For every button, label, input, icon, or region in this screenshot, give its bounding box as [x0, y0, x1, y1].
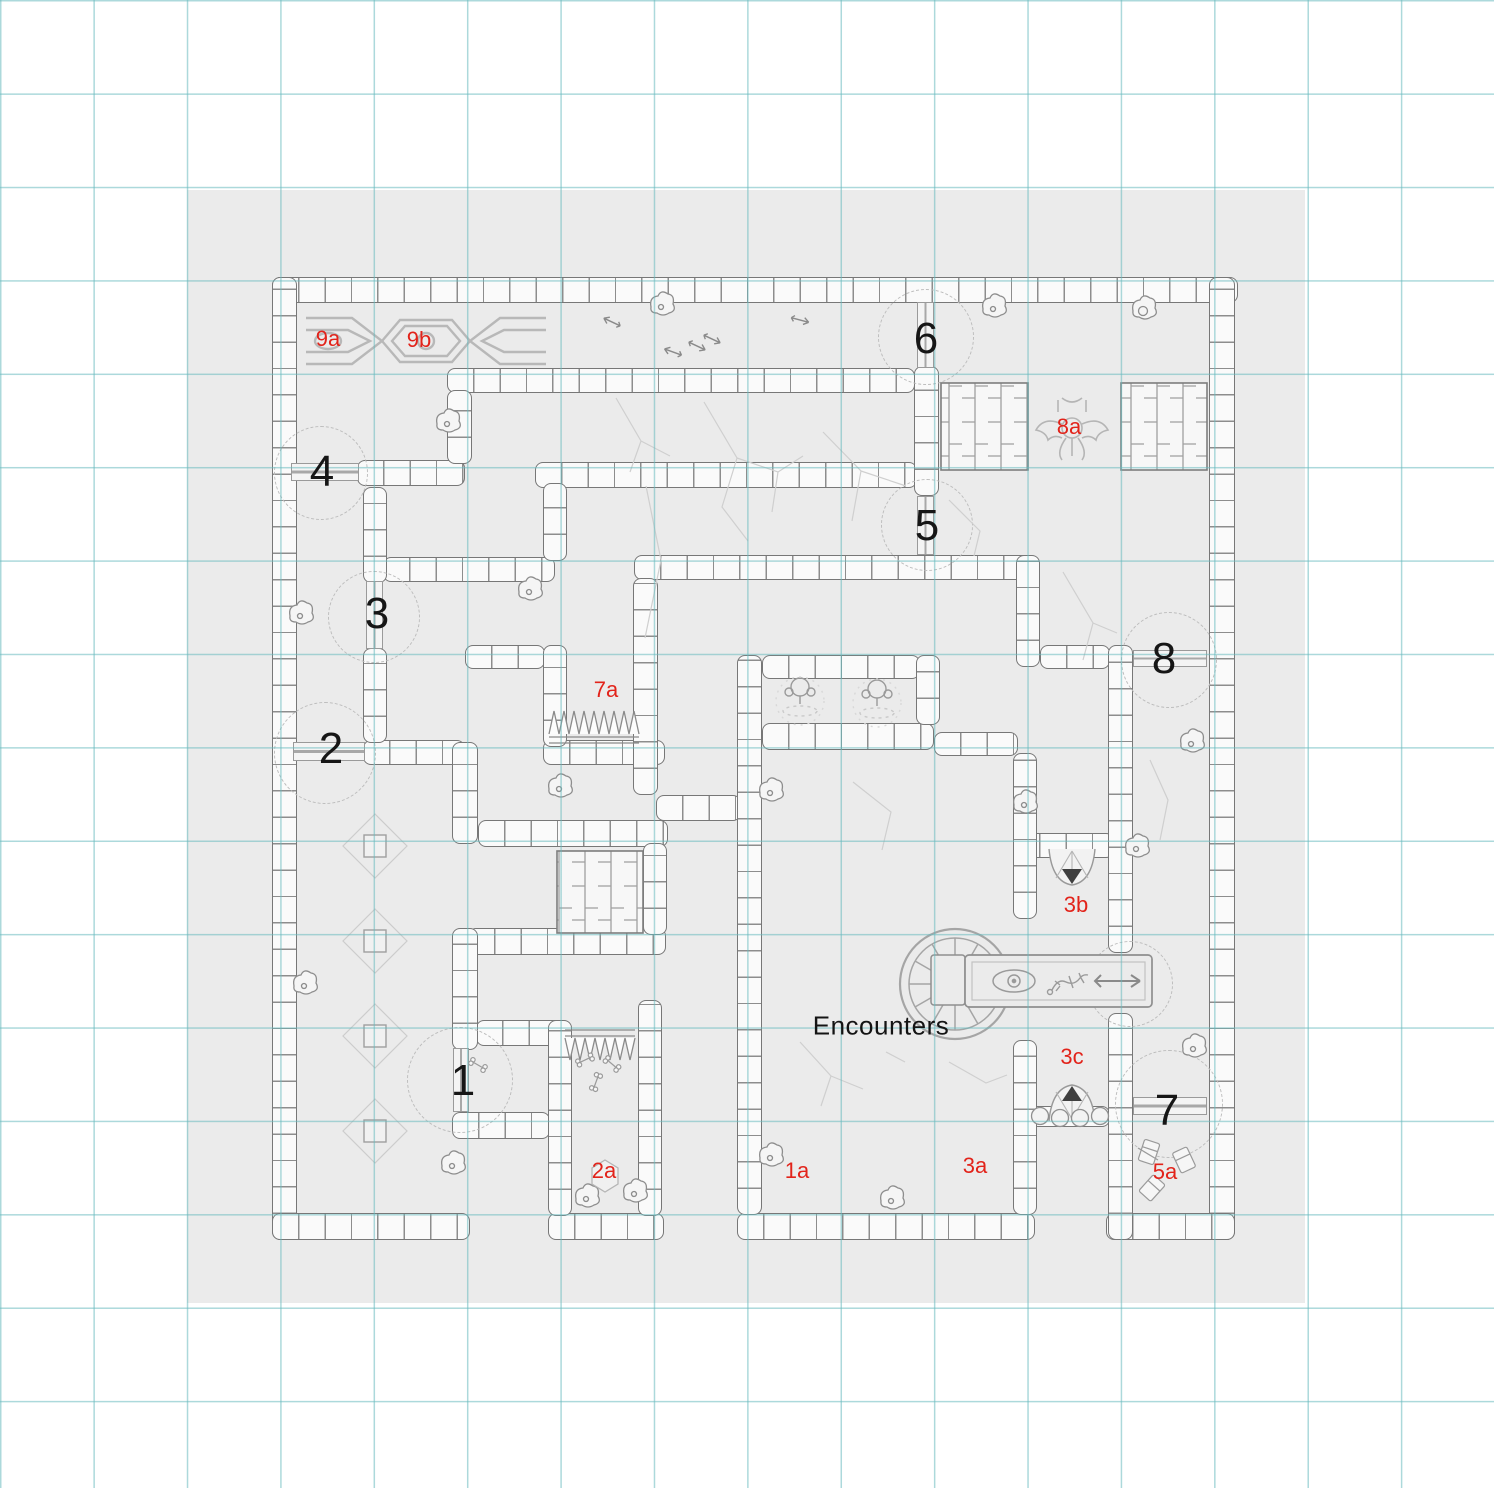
wall-segment [535, 462, 917, 488]
wall-segment [656, 795, 741, 821]
map-canvas[interactable]: 1 2 3 4 5 6 7 8 9a 9b 8a 7a 3b 3c 2a 1a … [0, 0, 1494, 1488]
area-label-9a: 9a [316, 326, 340, 352]
door-label-4: 4 [310, 447, 334, 497]
wall-segment [357, 460, 465, 486]
wall-segment [916, 655, 940, 725]
wall-segment [737, 655, 762, 1215]
door-label-3: 3 [365, 589, 389, 639]
wall-segment [1040, 645, 1110, 669]
wall-segment [634, 555, 1030, 580]
wall-segment [638, 1000, 662, 1216]
door-swing-arc [1087, 941, 1173, 1027]
wall-segment [1030, 1106, 1110, 1127]
area-label-3a: 3a [963, 1153, 987, 1179]
door-label-8: 8 [1152, 634, 1176, 684]
wall-segment [914, 366, 939, 496]
wall-segment [447, 368, 915, 393]
door-label-5: 5 [915, 501, 939, 551]
area-label-1a: 1a [785, 1158, 809, 1184]
wall-segment [1013, 1040, 1037, 1215]
wall-segment [543, 645, 567, 747]
door-label-6: 6 [914, 314, 938, 364]
wall-segment [465, 645, 545, 669]
area-label-9b: 9b [407, 327, 431, 353]
wall-segment [737, 1213, 1035, 1240]
wall-segment [643, 843, 667, 935]
wall-segment [934, 732, 1018, 756]
wall-segment [633, 578, 658, 795]
area-label-8a: 8a [1057, 414, 1081, 440]
wall-segment [478, 820, 668, 847]
encounters-title: Encounters [813, 1011, 950, 1042]
wall-segment [548, 1020, 572, 1216]
wall-segment [1013, 753, 1037, 919]
wall-segment [543, 483, 567, 561]
wall-segment [762, 655, 920, 679]
wall-segment [272, 277, 1238, 303]
door-label-1: 1 [451, 1056, 475, 1106]
wall-segment [447, 390, 472, 464]
wall-segment [548, 1213, 664, 1240]
wall-segment [272, 1213, 470, 1240]
area-label-2a: 2a [592, 1158, 616, 1184]
door-label-2: 2 [319, 724, 343, 774]
wall-segment [1016, 555, 1040, 667]
wall-segment [762, 723, 934, 750]
wall-segment [363, 487, 387, 583]
wall-segment [468, 928, 666, 955]
wall-segment [363, 740, 465, 765]
area-label-3b: 3b [1064, 892, 1088, 918]
wall-segment [452, 742, 478, 844]
wall-segment [383, 557, 555, 582]
area-label-3c: 3c [1060, 1044, 1083, 1070]
door-label-7: 7 [1155, 1086, 1179, 1136]
wall-segment [1108, 645, 1133, 953]
area-label-7a: 7a [594, 677, 618, 703]
area-label-5a: 5a [1153, 1159, 1177, 1185]
